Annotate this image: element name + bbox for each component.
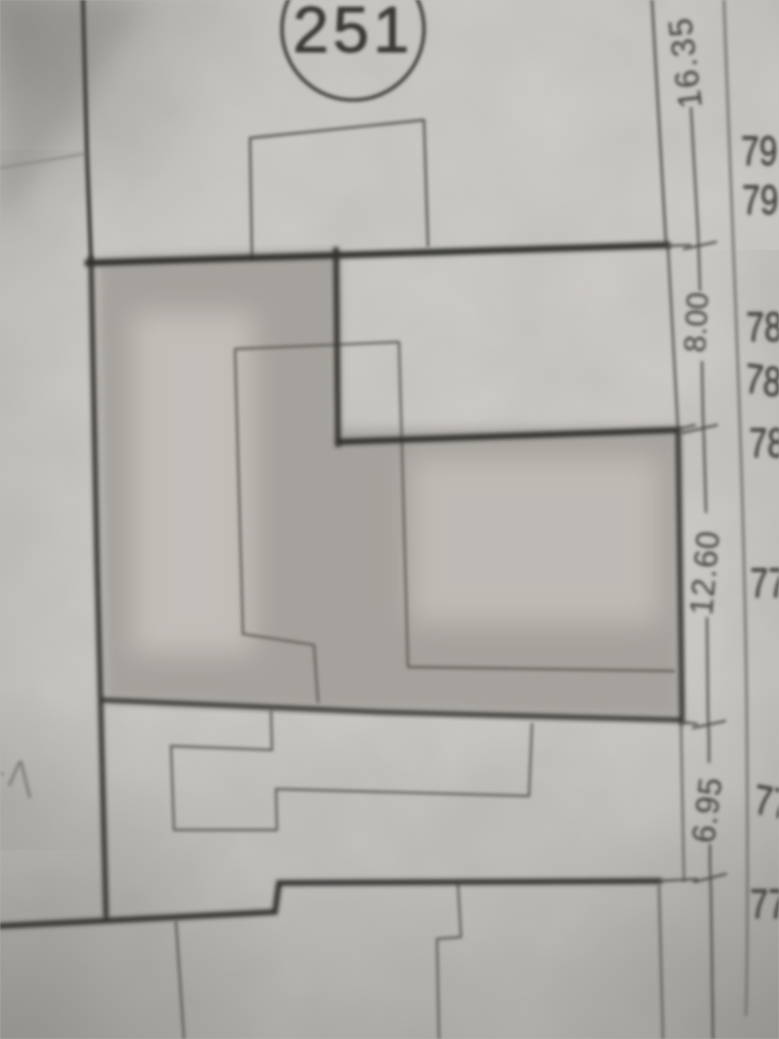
svg-text:78: 78 bbox=[749, 419, 779, 466]
svg-text:12.60: 12.60 bbox=[683, 529, 726, 617]
svg-text:79: 79 bbox=[741, 127, 777, 174]
svg-text:251: 251 bbox=[293, 0, 413, 66]
svg-text:77: 77 bbox=[752, 775, 779, 828]
svg-text:78: 78 bbox=[743, 354, 779, 405]
svg-text:77: 77 bbox=[750, 559, 779, 606]
svg-text:79: 79 bbox=[742, 176, 778, 223]
svg-text:78: 78 bbox=[746, 303, 779, 350]
svg-text:77: 77 bbox=[750, 880, 779, 927]
svg-text:8.00: 8.00 bbox=[677, 291, 715, 353]
